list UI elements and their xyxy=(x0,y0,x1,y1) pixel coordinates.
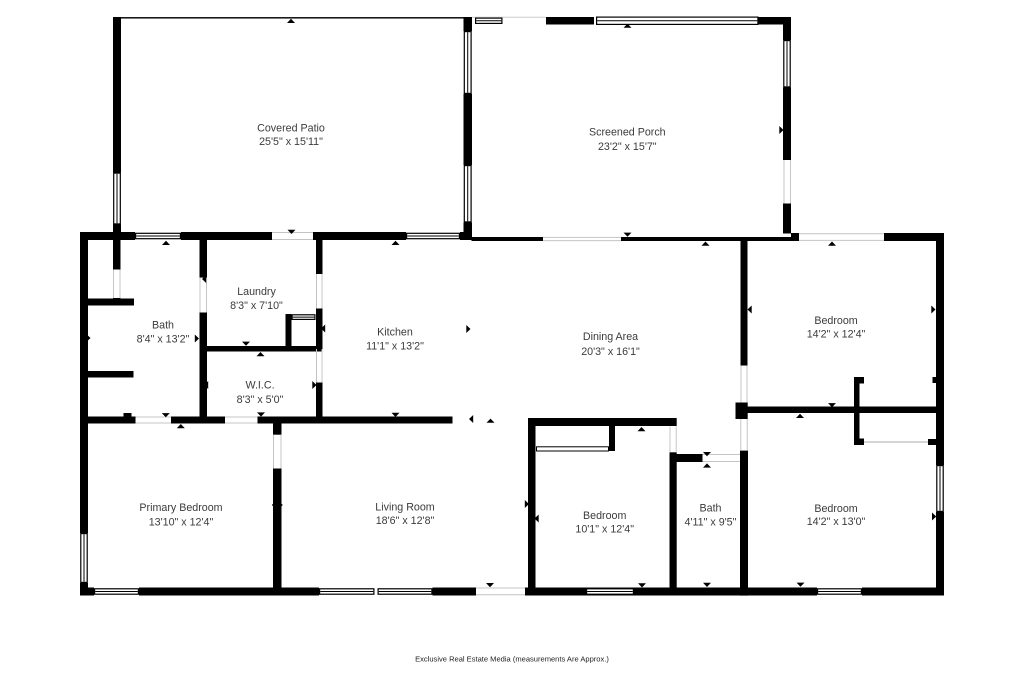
svg-text:11'1" x 13'2": 11'1" x 13'2" xyxy=(366,341,424,353)
svg-text:20'3" x 16'1": 20'3" x 16'1" xyxy=(581,346,640,358)
svg-text:Screened Porch: Screened Porch xyxy=(589,126,666,138)
svg-text:Bedroom: Bedroom xyxy=(814,315,857,327)
svg-text:Bath: Bath xyxy=(152,319,174,331)
svg-text:Kitchen: Kitchen xyxy=(377,326,413,338)
svg-text:Dining Area: Dining Area xyxy=(583,331,638,343)
svg-text:Living Room: Living Room xyxy=(375,502,434,514)
svg-text:Exclusive Real Estate Media (m: Exclusive Real Estate Media (measurement… xyxy=(415,655,609,664)
svg-text:14'2" x 13'0": 14'2" x 13'0" xyxy=(807,516,866,528)
svg-text:23'2" x 15'7": 23'2" x 15'7" xyxy=(598,141,657,153)
svg-text:8'3" x 5'0": 8'3" x 5'0" xyxy=(237,394,284,406)
svg-text:Bedroom: Bedroom xyxy=(814,503,857,515)
svg-text:8'4" x 13'2": 8'4" x 13'2" xyxy=(137,333,190,345)
svg-text:14'2" x 12'4": 14'2" x 12'4" xyxy=(807,328,866,340)
svg-text:18'6" x 12'8": 18'6" x 12'8" xyxy=(376,515,435,527)
svg-text:Primary Bedroom: Primary Bedroom xyxy=(139,502,222,514)
svg-text:W.I.C.: W.I.C. xyxy=(245,380,274,392)
svg-text:8'3" x 7'10": 8'3" x 7'10" xyxy=(230,300,283,312)
svg-text:13'10" x 12'4": 13'10" x 12'4" xyxy=(149,516,214,528)
svg-text:Laundry: Laundry xyxy=(237,286,276,298)
svg-text:Bedroom: Bedroom xyxy=(583,510,626,522)
svg-text:Bath: Bath xyxy=(700,503,722,515)
svg-text:10'1" x 12'4": 10'1" x 12'4" xyxy=(575,524,634,536)
svg-text:25'5" x 15'11": 25'5" x 15'11" xyxy=(259,136,323,148)
svg-text:Covered Patio: Covered Patio xyxy=(257,122,325,134)
svg-text:4'11" x 9'5": 4'11" x 9'5" xyxy=(685,517,737,529)
